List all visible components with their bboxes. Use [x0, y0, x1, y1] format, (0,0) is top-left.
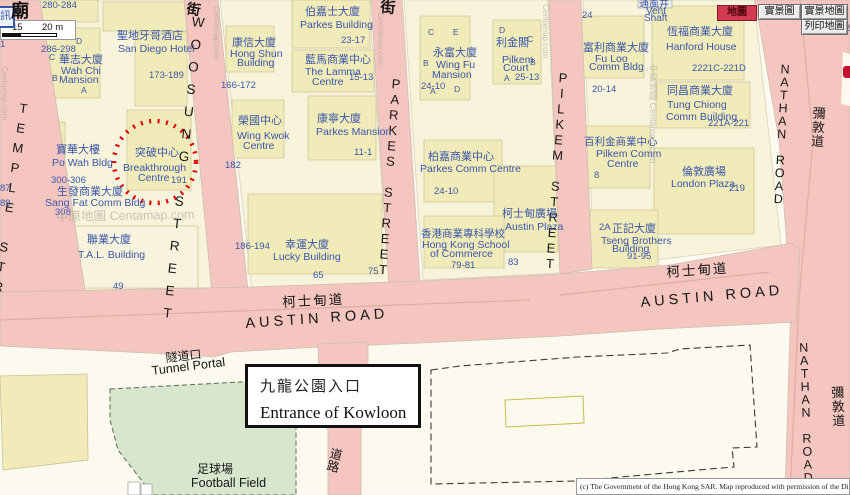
- annotation-title-en: Entrance of Kowloon: [260, 403, 418, 423]
- corner-building: [0, 374, 88, 470]
- scale-bar-graphic: [2, 33, 57, 37]
- real-view-button[interactable]: 實景圖: [758, 4, 801, 20]
- mtr-station-icon: [843, 66, 850, 78]
- park-structures: [128, 482, 152, 495]
- real-view-map-button[interactable]: 實景地圖: [801, 4, 848, 20]
- temple-street-char: 廟: [11, 0, 29, 23]
- copyright-notice: (c) The Government of the Hong Kong SAR.…: [576, 478, 850, 495]
- annotation-box: 九龍公園入口 Entrance of Kowloon: [245, 364, 421, 428]
- annotation-title-zh: 九龍公園入口: [260, 375, 418, 396]
- map-mode-button[interactable]: 地圖: [717, 5, 757, 21]
- map-geometry: [0, 0, 850, 495]
- map-canvas[interactable]: TEMPLE STREETWOOSUNG STREETPARKES STREET…: [0, 0, 850, 495]
- scale-end-label: 20 m: [42, 22, 63, 33]
- print-map-button[interactable]: 列印地圖: [801, 19, 848, 35]
